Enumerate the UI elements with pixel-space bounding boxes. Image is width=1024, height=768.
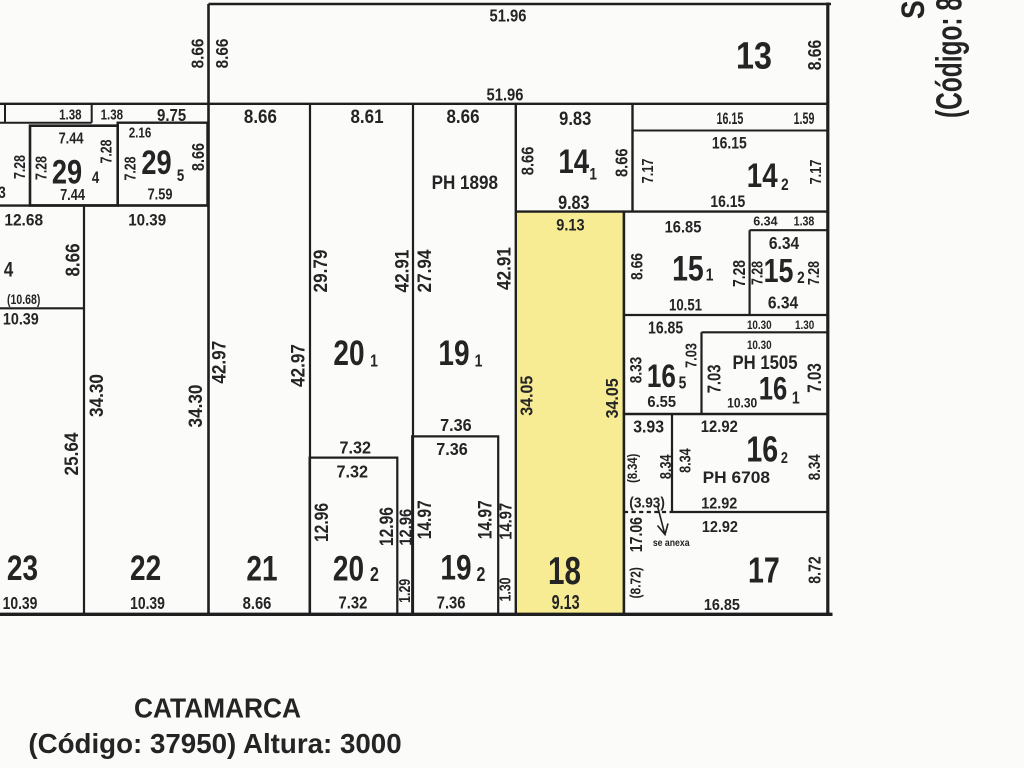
svg-text:8.66: 8.66 bbox=[804, 40, 826, 71]
svg-text:CATAMARCA: CATAMARCA bbox=[134, 692, 301, 724]
svg-text:7.28: 7.28 bbox=[805, 261, 823, 285]
svg-text:8.66: 8.66 bbox=[446, 105, 479, 127]
svg-text:15: 15 bbox=[672, 248, 704, 288]
svg-text:2: 2 bbox=[370, 563, 379, 585]
svg-text:22: 22 bbox=[130, 548, 161, 588]
svg-text:8.66: 8.66 bbox=[189, 143, 209, 171]
svg-text:(Código: 37950) Altura: 3000: (Código: 37950) Altura: 3000 bbox=[28, 728, 401, 759]
svg-text:34.05: 34.05 bbox=[602, 378, 622, 418]
svg-text:9.13: 9.13 bbox=[552, 591, 580, 614]
svg-text:7.28: 7.28 bbox=[97, 139, 115, 163]
svg-text:8.34: 8.34 bbox=[806, 454, 825, 481]
svg-text:7.44: 7.44 bbox=[59, 130, 84, 148]
svg-text:7.44: 7.44 bbox=[60, 187, 85, 205]
svg-text:10.51: 10.51 bbox=[669, 297, 702, 315]
svg-text:5: 5 bbox=[177, 166, 184, 185]
svg-text:8.66: 8.66 bbox=[244, 105, 277, 127]
svg-text:51.96: 51.96 bbox=[487, 85, 524, 105]
svg-text:8.66: 8.66 bbox=[187, 39, 207, 69]
svg-text:1.38: 1.38 bbox=[59, 106, 82, 123]
svg-text:16.15: 16.15 bbox=[712, 134, 747, 153]
svg-text:29: 29 bbox=[141, 143, 171, 182]
svg-text:6.34: 6.34 bbox=[753, 215, 777, 229]
svg-text:PH 1898: PH 1898 bbox=[432, 171, 498, 193]
svg-text:16.85: 16.85 bbox=[648, 318, 683, 338]
svg-text:16: 16 bbox=[746, 429, 778, 469]
svg-text:7.03: 7.03 bbox=[803, 363, 825, 393]
svg-text:1.30: 1.30 bbox=[795, 319, 814, 332]
svg-text:14.97: 14.97 bbox=[413, 500, 435, 539]
svg-text:51.96: 51.96 bbox=[490, 6, 527, 26]
svg-text:2: 2 bbox=[797, 269, 805, 288]
svg-text:8.66: 8.66 bbox=[519, 147, 538, 176]
svg-text:2.16: 2.16 bbox=[129, 124, 152, 141]
svg-text:(Código: 8: (Código: 8 bbox=[929, 0, 970, 118]
svg-text:42.97: 42.97 bbox=[207, 341, 229, 384]
svg-text:6.55: 6.55 bbox=[647, 394, 676, 411]
svg-text:(8.34): (8.34) bbox=[625, 454, 640, 483]
svg-text:17: 17 bbox=[748, 550, 780, 590]
svg-text:10.30: 10.30 bbox=[747, 339, 772, 352]
svg-text:8.61: 8.61 bbox=[350, 105, 383, 127]
svg-text:(10.68): (10.68) bbox=[7, 292, 40, 308]
svg-text:7.32: 7.32 bbox=[340, 438, 372, 458]
svg-text:5: 5 bbox=[679, 374, 687, 393]
svg-text:16.85: 16.85 bbox=[704, 596, 741, 614]
svg-text:7.17: 7.17 bbox=[640, 158, 658, 183]
svg-text:1: 1 bbox=[475, 352, 483, 371]
svg-text:12.92: 12.92 bbox=[701, 418, 738, 436]
svg-text:1.38: 1.38 bbox=[101, 106, 124, 123]
svg-text:7.32: 7.32 bbox=[337, 462, 369, 482]
svg-text:7.36: 7.36 bbox=[437, 593, 466, 612]
svg-text:6.34: 6.34 bbox=[769, 234, 800, 253]
svg-text:PH 1505: PH 1505 bbox=[733, 352, 798, 373]
svg-text:7.28: 7.28 bbox=[121, 156, 139, 180]
svg-text:19: 19 bbox=[438, 333, 469, 373]
svg-text:15: 15 bbox=[764, 252, 794, 290]
svg-text:34.30: 34.30 bbox=[85, 374, 107, 417]
svg-text:7.03: 7.03 bbox=[704, 364, 725, 393]
svg-text:1.38: 1.38 bbox=[794, 215, 815, 229]
svg-text:10.39: 10.39 bbox=[130, 594, 165, 613]
svg-text:12.96: 12.96 bbox=[375, 507, 397, 546]
svg-text:14.97: 14.97 bbox=[496, 503, 516, 540]
svg-text:se anexa: se anexa bbox=[653, 537, 690, 548]
svg-text:3: 3 bbox=[0, 184, 6, 203]
svg-text:2: 2 bbox=[781, 176, 789, 195]
svg-text:7.28: 7.28 bbox=[730, 260, 749, 287]
svg-text:8.33: 8.33 bbox=[627, 357, 646, 383]
svg-text:8.66: 8.66 bbox=[629, 253, 647, 280]
svg-text:18: 18 bbox=[548, 550, 581, 593]
svg-text:19: 19 bbox=[440, 548, 471, 588]
svg-text:8.72: 8.72 bbox=[806, 556, 825, 584]
svg-text:1: 1 bbox=[589, 165, 597, 184]
svg-text:S: S bbox=[896, 0, 931, 19]
svg-text:7.36: 7.36 bbox=[436, 439, 468, 459]
svg-text:4: 4 bbox=[4, 259, 14, 282]
svg-text:16: 16 bbox=[647, 358, 676, 394]
svg-text:(8.72): (8.72) bbox=[627, 567, 644, 598]
svg-text:8.66: 8.66 bbox=[61, 243, 84, 276]
svg-text:7.28: 7.28 bbox=[10, 155, 28, 179]
svg-text:7.36: 7.36 bbox=[440, 415, 472, 435]
svg-text:17.06: 17.06 bbox=[628, 517, 647, 552]
svg-text:16.15: 16.15 bbox=[710, 193, 745, 212]
svg-text:14.97: 14.97 bbox=[474, 500, 496, 539]
svg-text:27.94: 27.94 bbox=[413, 249, 435, 293]
svg-text:42.97: 42.97 bbox=[287, 344, 309, 387]
svg-text:12.92: 12.92 bbox=[702, 518, 738, 536]
svg-text:25.64: 25.64 bbox=[60, 432, 82, 476]
svg-text:10.30: 10.30 bbox=[727, 395, 757, 411]
svg-text:21: 21 bbox=[246, 549, 277, 589]
svg-text:7.17: 7.17 bbox=[808, 160, 826, 185]
svg-text:14: 14 bbox=[558, 142, 589, 181]
svg-text:3.93: 3.93 bbox=[633, 417, 664, 437]
svg-text:1: 1 bbox=[370, 352, 378, 371]
svg-text:7.59: 7.59 bbox=[148, 186, 173, 204]
svg-text:1.30: 1.30 bbox=[496, 577, 514, 601]
svg-text:9.75: 9.75 bbox=[157, 106, 186, 125]
svg-text:9.83: 9.83 bbox=[559, 108, 591, 130]
svg-text:10.39: 10.39 bbox=[3, 594, 38, 613]
svg-text:16: 16 bbox=[759, 372, 787, 407]
svg-text:13: 13 bbox=[736, 35, 772, 77]
svg-text:2: 2 bbox=[477, 563, 486, 585]
svg-text:8.66: 8.66 bbox=[612, 148, 631, 177]
svg-text:2: 2 bbox=[781, 450, 788, 468]
svg-text:9.83: 9.83 bbox=[558, 192, 590, 214]
svg-text:8.66: 8.66 bbox=[243, 594, 272, 613]
svg-text:7.28: 7.28 bbox=[32, 156, 50, 180]
svg-text:20: 20 bbox=[333, 333, 364, 373]
svg-text:12.96: 12.96 bbox=[311, 503, 333, 542]
svg-text:34.05: 34.05 bbox=[517, 376, 537, 416]
svg-text:PH 6708: PH 6708 bbox=[703, 468, 770, 487]
svg-text:(3.93): (3.93) bbox=[629, 495, 665, 512]
svg-text:34.30: 34.30 bbox=[184, 385, 206, 428]
svg-text:8.34: 8.34 bbox=[658, 454, 676, 479]
svg-text:1.59: 1.59 bbox=[794, 110, 815, 128]
svg-text:1.29: 1.29 bbox=[396, 579, 414, 603]
svg-text:4: 4 bbox=[92, 169, 100, 188]
svg-text:20: 20 bbox=[333, 549, 364, 589]
svg-text:29.79: 29.79 bbox=[309, 250, 331, 293]
svg-text:7.32: 7.32 bbox=[339, 593, 368, 612]
svg-text:42.91: 42.91 bbox=[492, 247, 514, 290]
svg-text:16.85: 16.85 bbox=[665, 219, 702, 237]
svg-text:12.68: 12.68 bbox=[4, 211, 43, 230]
svg-text:6.34: 6.34 bbox=[768, 294, 799, 313]
svg-text:1: 1 bbox=[706, 266, 714, 285]
svg-text:1: 1 bbox=[792, 388, 800, 408]
svg-text:9.13: 9.13 bbox=[556, 217, 585, 235]
svg-text:23: 23 bbox=[7, 548, 38, 588]
svg-text:10.39: 10.39 bbox=[128, 211, 166, 230]
svg-text:7.03: 7.03 bbox=[683, 343, 701, 368]
svg-text:42.91: 42.91 bbox=[390, 250, 412, 293]
svg-text:14: 14 bbox=[747, 156, 778, 195]
svg-text:8.34: 8.34 bbox=[677, 448, 695, 473]
svg-text:10.30: 10.30 bbox=[747, 319, 772, 332]
svg-text:16.15: 16.15 bbox=[717, 110, 744, 128]
svg-text:12.92: 12.92 bbox=[701, 495, 737, 513]
svg-text:8.66: 8.66 bbox=[212, 39, 232, 69]
svg-text:10.39: 10.39 bbox=[3, 311, 39, 329]
